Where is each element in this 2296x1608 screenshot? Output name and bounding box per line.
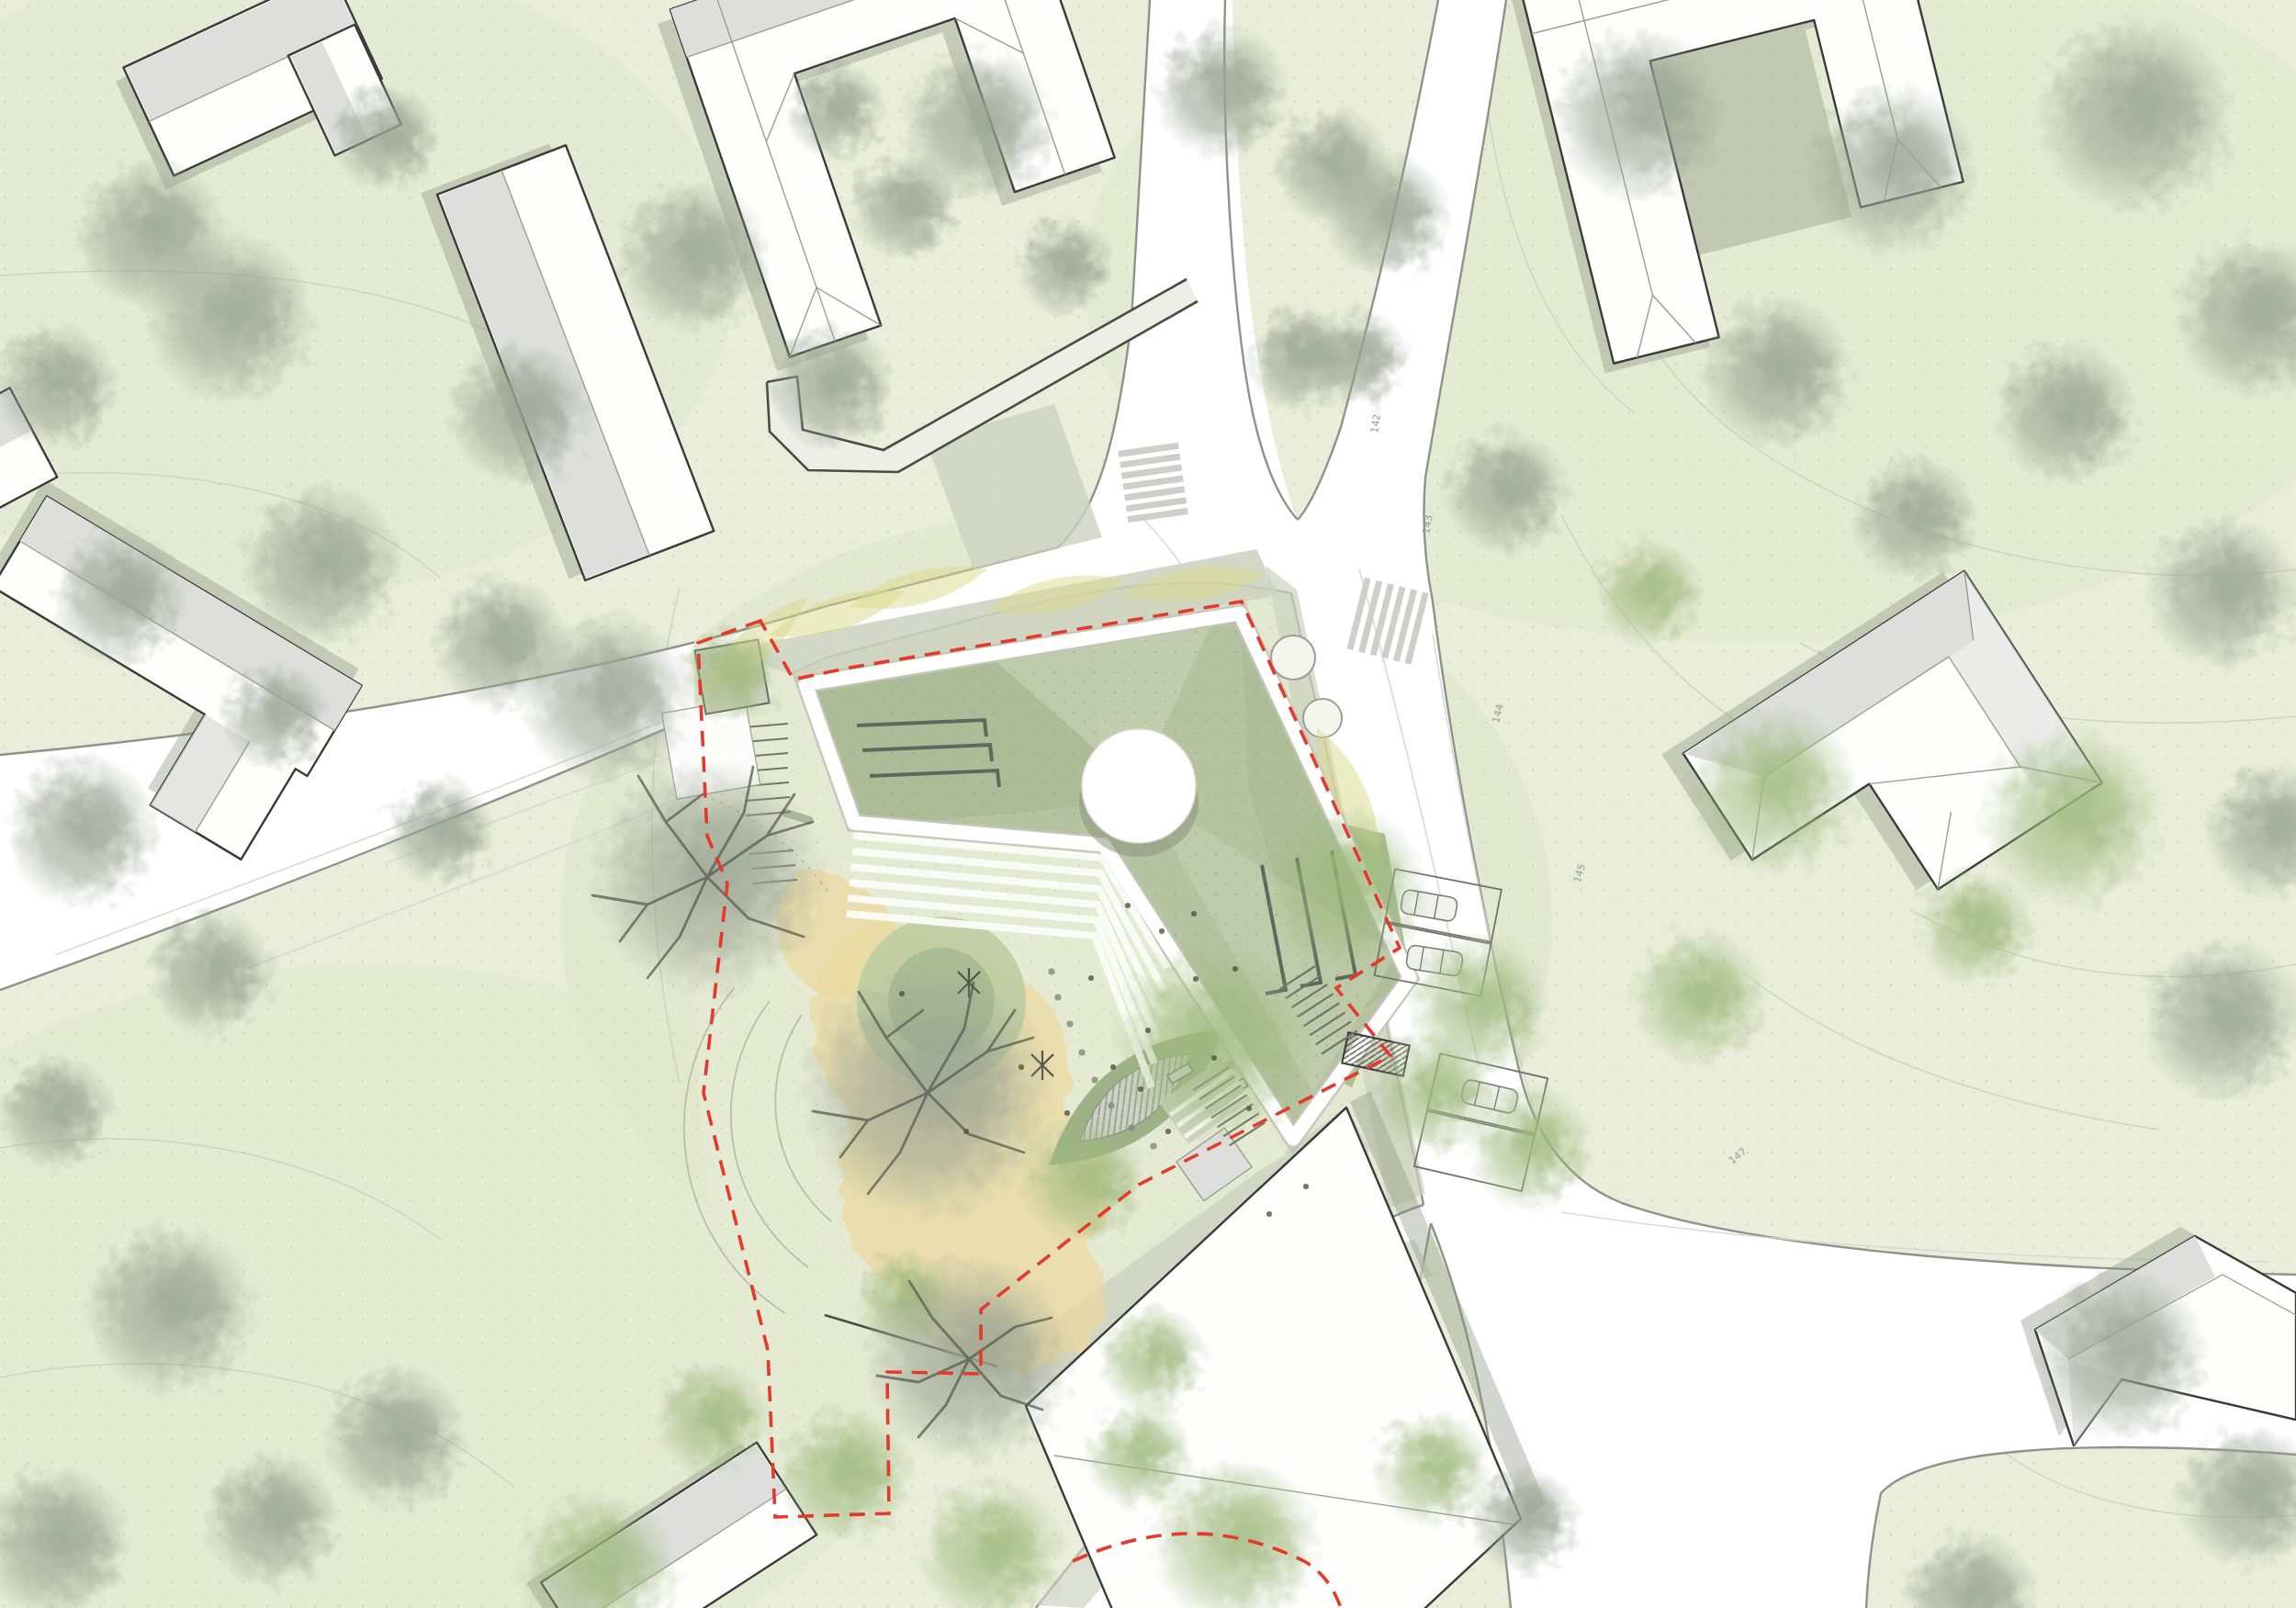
- tree-canopy-core: [1745, 736, 1832, 823]
- tree-canopy-core: [1612, 61, 1699, 148]
- person-figure: [1138, 1086, 1143, 1092]
- tree-canopy-core: [249, 1478, 318, 1546]
- tree: [1084, 1400, 1194, 1511]
- tree: [1805, 83, 1979, 257]
- tree: [1272, 106, 1391, 225]
- tree: [680, 624, 781, 725]
- tree-canopy-core: [1864, 116, 1952, 203]
- tree: [1593, 537, 1704, 647]
- tree: [1993, 340, 2140, 487]
- tree-canopy-core: [953, 75, 1031, 153]
- tree: [2144, 514, 2296, 670]
- tree-canopy-core: [1677, 954, 1746, 1023]
- tree-canopy-core: [1121, 1422, 1176, 1477]
- person-figure: [1303, 1184, 1309, 1189]
- person-figure: [1191, 911, 1197, 916]
- path-stone: [1066, 1020, 1073, 1027]
- tree-canopy-core: [2094, 1300, 2181, 1388]
- person-figure: [1159, 928, 1165, 934]
- tree-canopy-core: [1199, 50, 1268, 118]
- tree-canopy-core: [1895, 479, 1959, 544]
- tree-canopy-core: [2043, 367, 2116, 441]
- tree: [519, 611, 693, 785]
- tree-canopy-core: [819, 79, 870, 129]
- path-stone: [1078, 1049, 1085, 1055]
- tree: [615, 179, 771, 335]
- tree-canopy-core: [191, 934, 255, 998]
- person-figure: [899, 991, 905, 996]
- tree-canopy-core: [968, 1506, 1041, 1580]
- tree-canopy-core: [1049, 235, 1099, 286]
- tree-canopy-core: [258, 682, 313, 737]
- tree: [1309, 308, 1410, 409]
- tree-canopy-core: [97, 555, 166, 624]
- tree-canopy-core: [692, 1382, 752, 1442]
- tree: [1552, 28, 1727, 202]
- tree: [1111, 941, 1313, 1143]
- person-figure: [1246, 1106, 1252, 1111]
- tree: [1699, 294, 1855, 450]
- tree: [1153, 23, 1290, 161]
- tree-canopy-core: [58, 782, 136, 860]
- tree-canopy-core: [1509, 1108, 1573, 1173]
- person-figure: [1019, 1064, 1024, 1070]
- tree: [652, 1359, 771, 1479]
- tree: [785, 60, 886, 161]
- tree-canopy-core: [570, 1519, 653, 1602]
- tree-canopy-core: [202, 263, 289, 350]
- tree-canopy-core: [495, 367, 568, 441]
- tree: [1015, 216, 1116, 317]
- tree-canopy-core: [2198, 544, 2276, 622]
- path-stone: [1048, 968, 1054, 974]
- person-figure: [1266, 1211, 1272, 1217]
- tree-canopy-core: [142, 1254, 230, 1342]
- tree-canopy-core: [30, 1494, 108, 1572]
- site-plan-page: 142143144145147: [0, 0, 2296, 1608]
- tree: [142, 230, 317, 404]
- tree: [239, 482, 404, 647]
- tree-canopy-core: [371, 1391, 445, 1465]
- tree-canopy-core: [1486, 452, 1550, 516]
- tree-canopy-core: [823, 1432, 892, 1501]
- person-figure: [963, 1129, 969, 1134]
- tree: [5, 753, 161, 909]
- tree-canopy-core: [1064, 1141, 1128, 1205]
- tree: [850, 152, 960, 262]
- tree-canopy-core: [1955, 891, 2015, 950]
- roof-circular-skylight: [1079, 729, 1199, 857]
- tree-canopy-core: [714, 644, 764, 694]
- tree: [147, 909, 276, 1038]
- tree-canopy-core: [2042, 760, 2133, 852]
- person-figure: [1064, 1110, 1070, 1116]
- tree-canopy-core: [1752, 323, 1830, 401]
- tree-canopy-core: [35, 346, 99, 410]
- tree-canopy-core: [1312, 129, 1372, 188]
- person-figure: [1110, 1064, 1116, 1070]
- tree-canopy-core: [295, 513, 377, 596]
- tree: [1373, 1410, 1492, 1529]
- tree: [2034, 1267, 2209, 1442]
- tree: [1851, 455, 1979, 583]
- tree-canopy-core: [887, 173, 942, 228]
- tree: [0, 1051, 115, 1171]
- tree: [1097, 1304, 1208, 1414]
- person-figure: [1211, 1055, 1217, 1061]
- tree: [1915, 868, 2034, 987]
- tree-canopy-core: [368, 104, 423, 159]
- tree: [2034, 14, 2236, 216]
- person-figure: [1232, 966, 1238, 972]
- tree-canopy-core: [1631, 558, 1686, 613]
- tree-canopy-core: [423, 797, 478, 852]
- site-plan-canvas: 142143144145147: [0, 0, 2296, 1608]
- tree: [1630, 928, 1768, 1065]
- tree-canopy-core: [1319, 835, 1401, 917]
- tree: [220, 661, 331, 771]
- tree-canopy-core: [669, 208, 747, 287]
- person-figure: [1088, 975, 1094, 981]
- tree-canopy-core: [2196, 968, 2279, 1051]
- person-figure: [1125, 903, 1131, 908]
- path-stone: [1108, 1102, 1114, 1108]
- tree-canopy-core: [1507, 1486, 1562, 1541]
- tree-canopy-core: [1413, 1433, 1473, 1492]
- path-stone: [1091, 1076, 1097, 1083]
- tree: [1442, 427, 1570, 556]
- tree: [331, 83, 441, 193]
- person-figure: [1165, 1129, 1171, 1134]
- person-figure: [1193, 976, 1199, 982]
- tree: [767, 321, 895, 450]
- tree-canopy-core: [579, 644, 666, 731]
- tree: [1685, 703, 1860, 877]
- person-figure: [1145, 1028, 1151, 1033]
- path-stone: [1128, 1124, 1134, 1130]
- tree: [1368, 1029, 1497, 1157]
- tree: [445, 340, 592, 487]
- path-stone: [1150, 1142, 1156, 1149]
- tree: [83, 1221, 257, 1396]
- path-stone: [1054, 994, 1061, 1000]
- tree-canopy-core: [811, 346, 875, 410]
- tree-canopy-core: [1455, 960, 1528, 1033]
- tree: [202, 1451, 340, 1589]
- tree-canopy-core: [1343, 327, 1393, 377]
- tree-canopy-core: [1135, 1325, 1190, 1380]
- tree: [386, 776, 496, 886]
- tree: [51, 528, 188, 666]
- tree-canopy-core: [1208, 1489, 1295, 1576]
- tree: [321, 1364, 468, 1511]
- tree-canopy-core: [1180, 980, 1281, 1081]
- tree-canopy-core: [36, 1074, 96, 1134]
- tree-canopy-core: [1412, 1053, 1477, 1118]
- tree-canopy-core: [2103, 52, 2204, 153]
